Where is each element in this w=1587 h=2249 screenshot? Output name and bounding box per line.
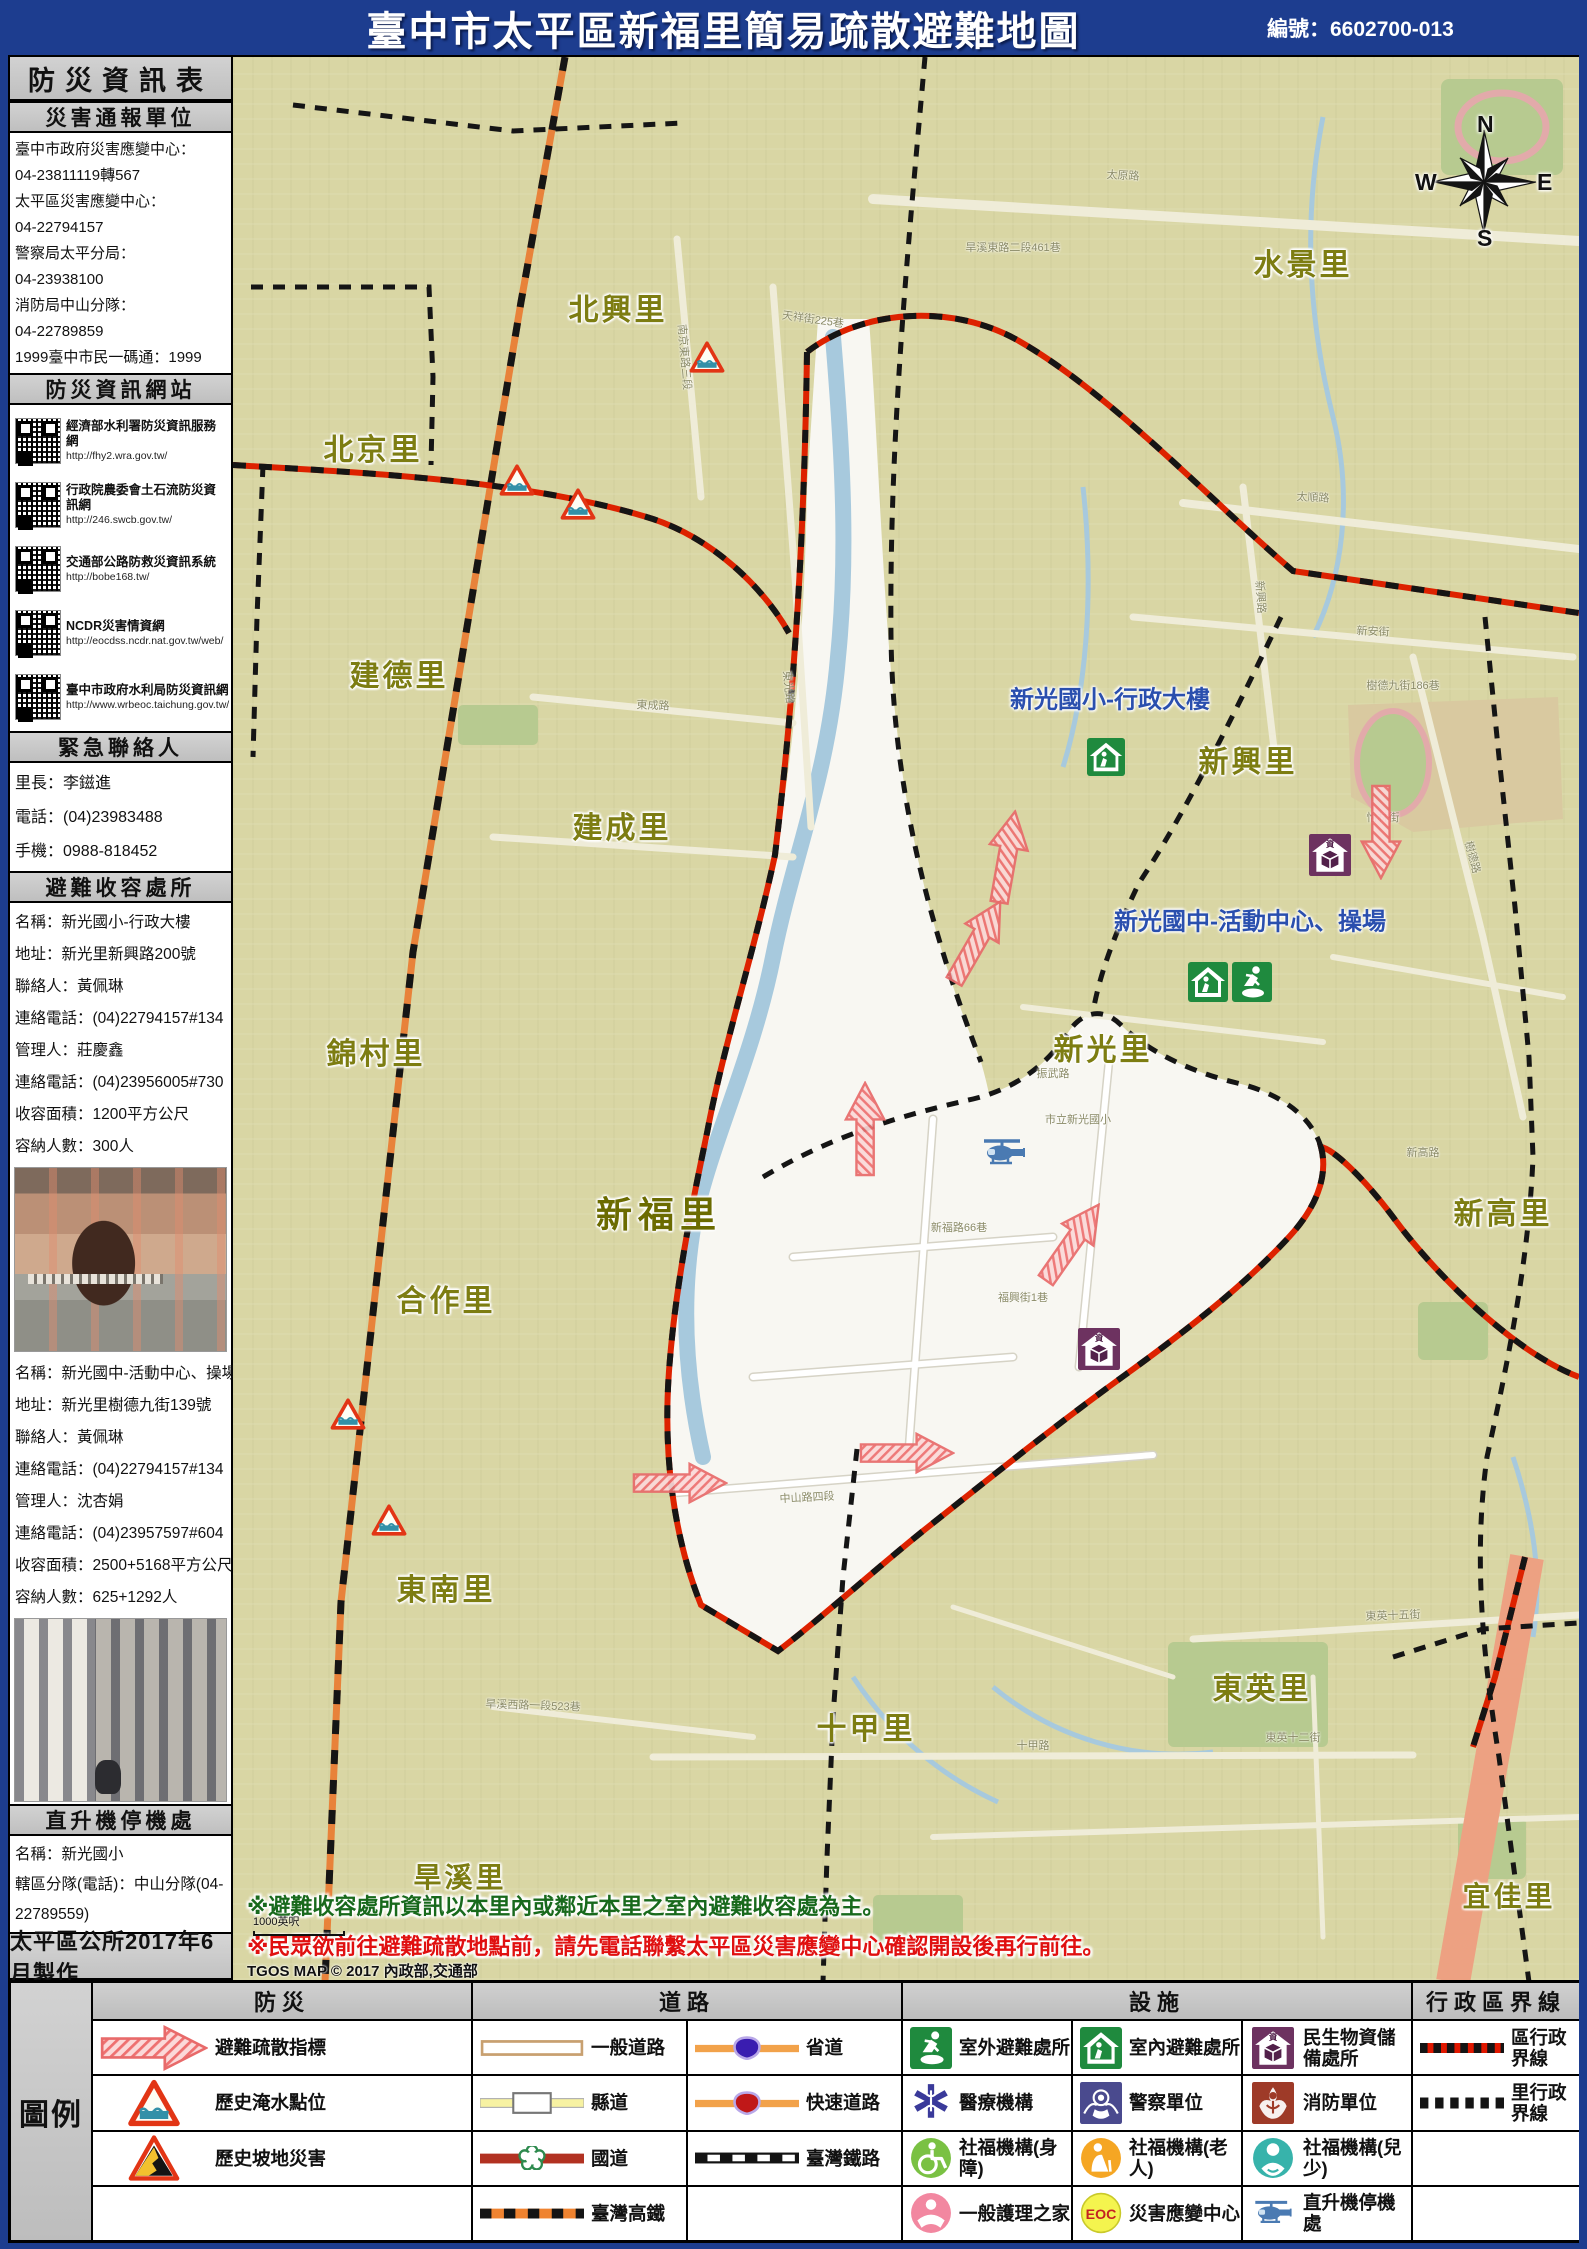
website-name: 臺中市政府水利局防災資訊網 [66,683,229,698]
evacuation-arrow-icon [1357,784,1403,880]
legend-entry-label: 快速道路 [806,2092,880,2113]
road-general-icon [480,2036,584,2060]
street-label: 振武路 [1037,1065,1070,1081]
info-line: 收容面積：2500+5168平方公尺 [15,1550,226,1582]
legend-entry: 室外避難處所 [903,2021,1071,2074]
map-base-layers [233,57,1579,1980]
compass-s: S [1477,225,1492,252]
street-label: 中山路四段 [779,1488,835,1507]
slope-marker-icon [100,2134,208,2182]
legend-column-header: 道路 [473,1983,901,2019]
boundary-district-icon [1420,2038,1504,2058]
legend-column: 行政區界線區行政界線里行政界線 [1413,1983,1579,2240]
compass-n: N [1477,111,1494,138]
legend-entry: 臺灣高鐵 [473,2187,686,2240]
report-units-header: 災害通報單位 [10,101,231,133]
legend-entry-label: 社福機構(老人) [1129,2137,1241,2179]
legend-entry-label: 社福機構(身障) [959,2137,1071,2179]
map-attribution: TGOS MAP © 2017 內政部,交通部 [247,1960,478,1980]
legend-entry: 醫療機構 [903,2076,1071,2129]
legend-entry-label: 一般護理之家 [959,2203,1070,2224]
info-line: 04-22794157 [15,215,226,241]
website-item: 臺中市政府水利局防災資訊網http://www.wrbeoc.taichung.… [15,665,226,729]
legend-entry: 臺灣鐵路 [688,2132,901,2185]
scale-bar: 1000英呎 [253,1913,345,1936]
legend-entry-label: 直升機停機處 [1303,2192,1411,2234]
shelter-1-info: 名稱：新光國小-行政大樓地址：新光里新興路200號聯絡人：黃佩琳連絡電話：(04… [10,903,231,1165]
shelters-header: 避難收容處所 [10,871,231,903]
road-national-icon [480,2146,584,2170]
page-title: 臺中市太平區新福里簡易疏散避難地圖 [0,0,1267,57]
info-line: 連絡電話：(04)23957597#604 [15,1518,226,1550]
legend-entry: 一般道路 [473,2021,686,2074]
street-label: 東英十五街 [1365,1606,1421,1624]
info-line: 連絡電話：(04)22794157#134 [15,1003,226,1035]
info-line: 電話：(04)23983488 [15,801,226,835]
svg-text:EOC: EOC [1086,2207,1117,2223]
compass-e: E [1537,169,1552,196]
scale-bar-line [253,1931,345,1936]
shelter-facility-label: 新光國中-活動中心、操場 [1114,902,1386,937]
village-label: 東南里 [397,1565,496,1609]
legend-entry: 區行政界線 [1413,2021,1579,2074]
street-label: 東英十二街 [1266,1729,1321,1745]
village-label: 宜佳里 [1462,1875,1555,1915]
evacuation-arrow-icon [843,1081,889,1177]
contacts-list: 里長：李鎡進電話：(04)23983488手機：0988-818452 [10,763,231,871]
website-item: 行政院農委會土石流防災資訊網http://246.swcb.gov.tw/ [15,473,226,537]
report-units-list: 臺中市政府災害應變中心：04-23811119轉567太平區災害應變中心：04-… [10,133,231,373]
village-label: 新光里 [1054,1025,1153,1069]
village-label: 新高里 [1454,1189,1553,1233]
legend-entry [1413,2187,1579,2240]
road-provincial-icon [695,2036,799,2060]
nursing-icon [910,2192,952,2234]
legend-entry: 歷史淹水點位 [93,2076,471,2129]
website-url: http://bobe168.tw/ [66,570,216,584]
legend-entry: 快速道路 [688,2076,901,2129]
legend-entry: 歷史坡地災害 [93,2132,471,2185]
legend-entry-label: 臺灣高鐵 [591,2203,665,2224]
legend-entry: 縣道 [473,2076,686,2129]
road-rail-icon [695,2146,799,2170]
website-name: NCDR災害情資網 [66,619,223,634]
shelter-indoor-icon [1087,738,1125,776]
heliport-icon [978,1136,1030,1170]
website-item: NCDR災害情資網http://eocdss.ncdr.nat.gov.tw/w… [15,601,226,665]
svg-text:資: 資 [1094,1333,1104,1343]
legend-entry: EOC災害應變中心 [1073,2187,1241,2240]
street-label: 旱溪東路二段461巷 [965,239,1060,255]
legend-entry [688,2187,901,2240]
info-line: 名稱：新光國小 [15,1840,226,1870]
street-label: 太順路 [1296,488,1330,506]
qr-code-icon [15,546,61,592]
village-label: 十甲里 [817,1704,916,1748]
village-label: 建成里 [573,803,672,847]
info-line: 里長：李鎡進 [15,767,226,801]
info-line: 太平區災害應變中心： [15,189,226,215]
legend-entry: 室內避難處所 [1073,2021,1241,2074]
info-line: 名稱：新光國中-活動中心、操場 [15,1358,226,1390]
legend-entry [93,2187,471,2240]
legend-entry-label: 室內避難處所 [1129,2037,1240,2058]
shelter-1-photo [14,1167,227,1351]
flood-marker-icon [689,341,725,374]
website-item: 交通部公路防救災資訊系統http://bobe168.tw/ [15,537,226,601]
village-label: 水景里 [1254,240,1353,284]
qr-code-icon [15,674,61,720]
supplies-icon: 資 [1078,1328,1120,1370]
heliport-header: 直升機停機處 [10,1804,231,1836]
info-line: 連絡電話：(04)22794157#134 [15,1454,226,1486]
eoc-icon: EOC [1080,2192,1122,2234]
legend-entry: 避難疏散指標 [93,2021,471,2074]
village-label: 北興里 [569,285,668,329]
legend: 圖例 防災避難疏散指標歷史淹水點位歷史坡地災害道路一般道路縣道國道臺灣高鐵省道快… [8,1980,1579,2243]
legend-column-header: 設施 [903,1983,1411,2019]
info-line: 名稱：新光國小-行政大樓 [15,907,226,939]
info-line: 警察局太平分局： [15,241,226,267]
shelter-outdoor-icon [910,2027,952,2069]
legend-entry: 社福機構(兒少) [1243,2132,1411,2185]
medical-icon [910,2082,952,2124]
note-confirm-before-going: ※民眾欲前往避難疏散地點前，請先電話聯繫太平區災害應變中心確認開設後再行前往。 [247,1929,1104,1961]
police-icon [1080,2082,1122,2124]
legend-title: 圖例 [11,1983,91,2240]
welfare-elderly-icon [1080,2137,1122,2179]
scale-label: 1000英呎 [253,1916,299,1928]
map-edition-number: 編號：6602700-013 [1267,13,1587,43]
welfare-child-icon [1250,2137,1296,2179]
info-line: 04-22789859 [15,319,226,345]
legend-column: 設施室外避難處所醫療機構社福機構(身障)一般護理之家室內避難處所警察單位社福機構… [903,1983,1411,2240]
street-label: 東光路 [779,670,798,704]
info-line: 容納人數：625+1292人 [15,1582,226,1614]
shelter-indoor-icon [1080,2027,1122,2069]
website-url: http://fhy2.wra.gov.tw/ [66,449,226,463]
website-url: http://eocdss.ncdr.nat.gov.tw/web/ [66,634,223,648]
street-label: 東成路 [636,696,670,713]
welfare-disabled-icon [910,2137,952,2179]
svg-text:資: 資 [1325,839,1335,849]
village-label: 東英里 [1213,1664,1312,1708]
village-label: 新興里 [1199,737,1298,781]
info-line: 聯絡人：黃佩琳 [15,1422,226,1454]
info-line: 容納人數：300人 [15,1131,226,1163]
legend-entry: 里行政界線 [1413,2076,1579,2129]
info-line: 收容面積：1200平方公尺 [15,1099,226,1131]
legend-entry: 警察單位 [1073,2076,1241,2129]
website-item: 經濟部水利署防災資訊服務網http://fhy2.wra.gov.tw/ [15,409,226,473]
legend-column-header: 防災 [93,1983,471,2019]
legend-entry-label: 歷史坡地災害 [215,2148,326,2169]
compass-points [1432,130,1536,234]
qr-code-icon [15,610,61,656]
legend-entry: 社福機構(身障) [903,2132,1071,2185]
legend-entry-label: 民生物資儲備處所 [1303,2027,1411,2069]
legend-column-header: 行政區界線 [1413,1983,1579,2019]
info-line: 地址：新光里新興路200號 [15,939,226,971]
legend-column: 防災避難疏散指標歷史淹水點位歷史坡地災害 [93,1983,471,2240]
village-label: 錦村里 [327,1029,426,1073]
legend-entry-label: 災害應變中心 [1129,2203,1240,2224]
street-label: 新興路 [1252,580,1270,614]
legend-entry: 省道 [688,2021,901,2074]
website-url: http://www.wrbeoc.taichung.gov.tw/ [66,698,229,712]
info-line: 管理人：莊慶鑫 [15,1035,226,1067]
website-url: http://246.swcb.gov.tw/ [66,513,226,527]
shelter-2-photo [14,1618,227,1802]
info-line: 臺中市政府災害應變中心： [15,137,226,163]
qr-code-icon [15,418,61,464]
park-areas [458,79,1563,1945]
website-name: 行政院農委會土石流防災資訊網 [66,483,226,513]
legend-entry-label: 區行政界線 [1511,2027,1579,2069]
street-label: 新高路 [1407,1144,1440,1160]
shelter-outdoor-icon [1232,962,1272,1002]
info-line: 轄區分隊(電話)：中山分隊(04-22789559) [15,1870,226,1930]
info-line: 04-23938100 [15,267,226,293]
road-county-icon [480,2091,584,2115]
legend-entry: 直升機停機處 [1243,2187,1411,2240]
heliport-info: 名稱：新光國小轄區分隊(電話)：中山分隊(04-22789559) [10,1836,231,1932]
flood-marker-icon [100,2079,208,2127]
publisher-footer: 太平區公所2017年6月製作 [10,1932,231,1978]
boundary-village-icon [1420,2093,1504,2113]
websites-header: 防災資訊網站 [10,373,231,405]
info-line: 1999臺中市民一碼通：1999 [15,345,226,371]
flood-marker-icon [499,464,535,497]
info-line: 連絡電話：(04)23956005#730 [15,1067,226,1099]
street-label: 新福路66巷 [931,1219,987,1235]
legend-entry-label: 歷史淹水點位 [215,2092,326,2113]
street-label: 旱溪西路一段523巷 [485,1695,581,1714]
info-line: 管理人：沈杏娟 [15,1486,226,1518]
info-panel-title: 防災資訊表 [10,57,231,101]
qr-code-icon [15,482,61,528]
legend-entry-label: 消防單位 [1303,2092,1377,2113]
shelter-facility-label: 新光國小-行政大樓 [1010,680,1210,715]
road-hsr-icon [480,2201,584,2225]
info-line: 聯絡人：黃佩琳 [15,971,226,1003]
legend-entry-label: 室外避難處所 [959,2037,1070,2058]
village-label: 建德里 [350,651,449,695]
title-bar: 臺中市太平區新福里簡易疏散避難地圖 編號：6602700-013 [0,0,1587,55]
flood-marker-icon [330,1398,366,1431]
legend-entry-label: 國道 [591,2148,628,2169]
street-label: 福興街1巷 [998,1289,1048,1305]
info-panel: 防災資訊表 災害通報單位 臺中市政府災害應變中心：04-23811119轉567… [8,55,233,1980]
legend-entry-label: 縣道 [591,2092,628,2113]
legend-entry [1413,2132,1579,2185]
legend-entry: 社福機構(老人) [1073,2132,1241,2185]
legend-entry-label: 避難疏散指標 [215,2037,326,2058]
street-label: 樹德九街186巷 [1366,677,1439,693]
legend-entry: 資民生物資儲備處所 [1243,2021,1411,2074]
websites-list: 經濟部水利署防災資訊服務網http://fhy2.wra.gov.tw/行政院農… [10,405,231,731]
info-line: 04-23811119轉567 [15,163,226,189]
road-express-icon [695,2091,799,2115]
legend-column: 道路一般道路縣道國道臺灣高鐵省道快速道路臺灣鐵路 [473,1983,901,2240]
street-label: 太原路 [1106,166,1140,184]
evac-arrow-icon [100,2024,208,2072]
street-label: 十甲路 [1017,1737,1050,1753]
legend-entry-label: 警察單位 [1129,2092,1203,2113]
supplies-icon: 資 [1250,2027,1296,2069]
village-label: 合作里 [397,1276,496,1320]
shelter-indoor-icon [1188,962,1228,1002]
website-name: 經濟部水利署防災資訊服務網 [66,419,226,449]
svg-text:資: 資 [1268,2032,1278,2042]
flood-marker-icon [371,1504,407,1537]
legend-entry-label: 臺灣鐵路 [806,2148,880,2169]
evacuation-arrow-icon [632,1461,728,1507]
fire-icon [1250,2082,1296,2124]
supplies-icon: 資 [1309,834,1351,876]
street-label: 市立新光國小 [1045,1111,1111,1127]
evacuation-map: N E S W 北興里北京里水景里建德里建成里錦村里新興里新光里新高里新福里合作… [233,55,1579,1980]
hsr-line [325,57,565,1980]
compass-rose: N E S W [1419,117,1549,247]
compass-w: W [1415,169,1437,196]
evacuation-arrow-icon [859,1431,955,1477]
street-label: 新安街 [1356,622,1390,639]
village-label: 北京里 [324,425,423,469]
legend-entry: 國道 [473,2132,686,2185]
shelter-2-info: 名稱：新光國中-活動中心、操場地址：新光里樹德九街139號聯絡人：黃佩琳連絡電話… [10,1354,231,1616]
legend-entry-label: 一般道路 [591,2037,665,2058]
legend-entry: 一般護理之家 [903,2187,1071,2240]
legend-entry-label: 省道 [806,2037,843,2058]
heliport-icon [1250,2192,1296,2234]
legend-entry: 消防單位 [1243,2076,1411,2129]
info-line: 地址：新光里樹德九街139號 [15,1390,226,1422]
contacts-header: 緊急聯絡人 [10,731,231,763]
flood-marker-icon [560,488,596,521]
legend-entry-label: 社福機構(兒少) [1303,2137,1411,2179]
legend-entry-label: 里行政界線 [1511,2082,1579,2124]
legend-entry-label: 醫療機構 [959,2092,1033,2113]
website-name: 交通部公路防救災資訊系統 [66,555,216,570]
info-line: 消防局中山分隊： [15,293,226,319]
info-line: 手機：0988-818452 [15,835,226,869]
village-label: 新福里 [596,1186,722,1238]
